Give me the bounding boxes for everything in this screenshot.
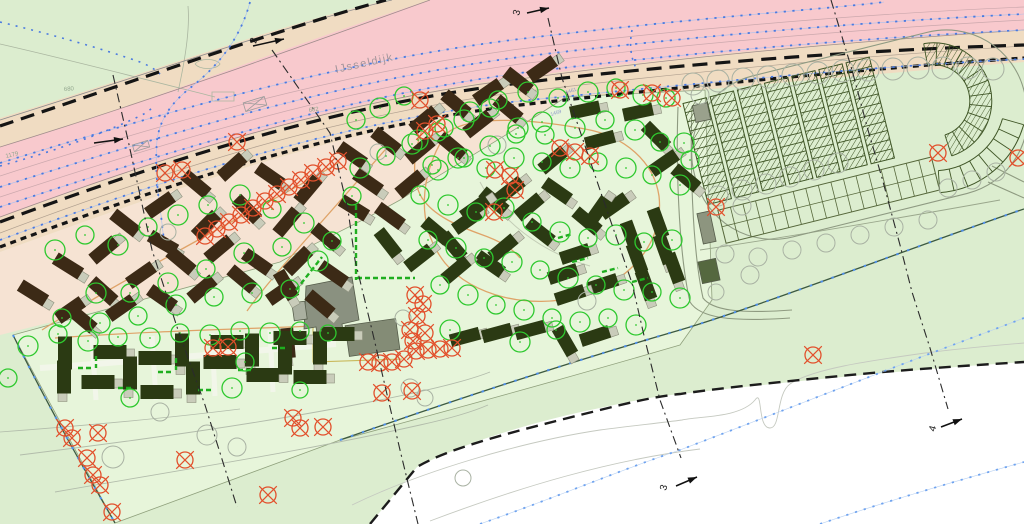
- cabin-body: [141, 385, 174, 399]
- tree-existing-icon: [716, 245, 734, 263]
- cabin-body: [278, 342, 292, 375]
- plan-canvas: IJsseldijk 680 682 1179 1461 1459 2 3 3 …: [0, 0, 1024, 524]
- tree-existing-icon: [749, 248, 767, 266]
- tree-removed-icon: [929, 144, 947, 162]
- cabin-body: [247, 368, 280, 382]
- tree-existing-icon: [939, 179, 957, 197]
- tree-existing-icon: [987, 163, 1005, 181]
- tree-existing-icon: [783, 241, 801, 259]
- map-line: [0, 22, 160, 74]
- tree-existing-icon: [919, 211, 937, 229]
- tree-removed-icon: [1009, 149, 1024, 167]
- cabin-body: [139, 351, 172, 365]
- tree-removed-icon: [804, 346, 822, 364]
- cabin-body: [123, 357, 137, 390]
- tree-existing-icon: [817, 234, 835, 252]
- tree-removed-icon: [259, 486, 277, 504]
- cabin-body: [211, 335, 244, 349]
- cabin-body: [82, 375, 115, 389]
- map-line: [988, 182, 1024, 198]
- tree-proposed-icon: [0, 369, 17, 387]
- tree-existing-icon: [851, 226, 869, 244]
- tree-existing-icon: [741, 266, 759, 284]
- map-line: [700, 200, 1000, 250]
- parcel-label: 680: [64, 86, 75, 93]
- cabin-body: [186, 362, 200, 395]
- cabin-body: [57, 361, 71, 394]
- cabin-body: [94, 345, 127, 359]
- map-line: [270, 330, 273, 392]
- cabin-body: [204, 355, 237, 369]
- cabin-body: [245, 334, 259, 367]
- cabin-body: [322, 327, 355, 341]
- site-plan: IJsseldijk 680 682 1179 1461 1459 2 3 3 …: [0, 0, 1024, 524]
- facility-building: [692, 103, 710, 123]
